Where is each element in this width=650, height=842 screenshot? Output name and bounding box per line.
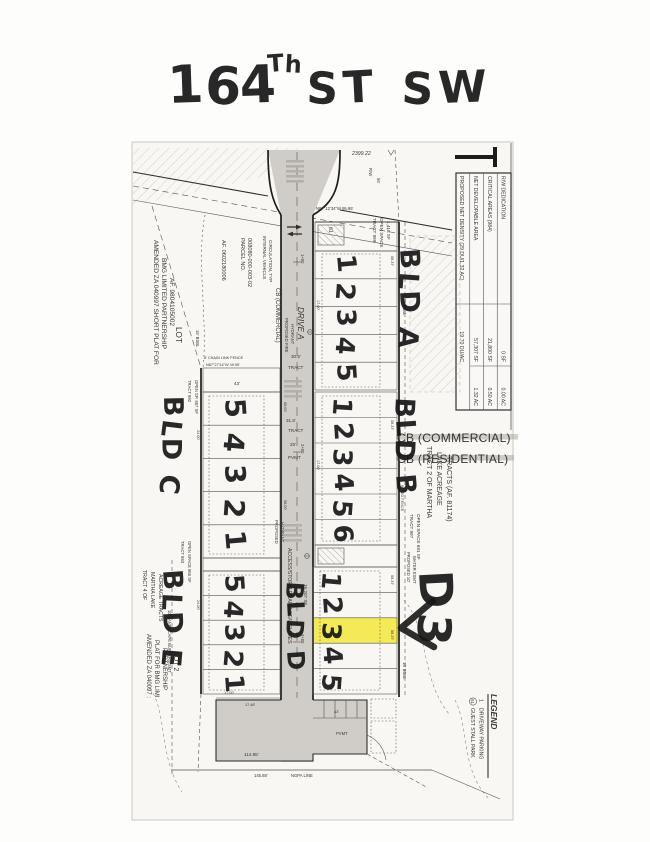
unit-dim: 58.37' [390,630,394,641]
tract-999-label: TRACT 999 [372,218,377,243]
fire-hydrant-label: HYDRANT [290,324,295,345]
unit-e-number: 2 [216,648,247,669]
parcel-number: PARCEL NO. [239,238,245,272]
legend-item-label: DRIVEWAY PARKING [478,708,484,759]
unit-dim: 58.37' [390,575,394,586]
dim-25: 25' [290,442,296,447]
dim-2399: 2399.22 [351,151,371,157]
internal-circulation-note: INTERNAL VEHICLE [262,236,267,279]
table-row-label: NET DEVELOPABLE AREA [472,176,478,241]
tract-992-label: OPEN SP. 957 SF [194,380,199,414]
tract-2-label: TRACTS (AF. 81174) [445,456,452,522]
unit-c-number: 2 [217,498,251,520]
tract-997-label: OPEN SPACE 691 SF [416,514,421,560]
internal-circulation-note: CIRCULATION, TYP [268,240,273,282]
proposed-hydrant-label: HYDRANT [280,522,285,543]
court-dim: 17.48' [245,703,256,707]
unit-dim: 58.37' [390,256,394,267]
table-row-acres: 0.00 AC [500,388,506,407]
table-row-area: 57,307 SF [472,338,478,362]
unit-d-number: 3 [315,622,346,642]
parcel-number: 008080-000-003-02 [246,238,252,287]
dim-30-5: 30.5' [291,354,301,359]
unit-dim: 58.00' [283,402,287,413]
dim-145-88: 145.88' [254,773,268,778]
unit-a-number: 3 [330,308,361,328]
dim-56: 56' [376,178,381,184]
tract-999-label: OPEN SPACE [379,218,384,248]
scanned-plat-document: 164 Th ST SW 2399.22 R/W 56' 29.3' EX PV… [0,0,650,842]
unit-c-number: 5 [218,397,252,419]
unit-d-number: 5 [315,673,346,693]
unit-b-number: 6 [327,524,358,544]
zoning-commercial-side: CB (COMMERCIAL) [274,288,280,343]
unit-e-number: 4 [217,600,248,620]
d3-callout: D3 [406,569,465,650]
unit-b-number: 4 [327,472,358,493]
unit-dim: 17.00' [316,300,320,311]
bsbl-label: 15' BSBL [195,330,200,348]
table-row-acres: 1.32 AC [472,388,478,407]
unit-dim: 24.00' [196,600,200,611]
unit-c-number: 1 [218,529,253,551]
tract-4-label: MARTHA LAKE [149,572,155,609]
pvmt-label: PVMT [336,731,348,736]
unit-e-number: 3 [218,623,249,643]
bld-e-label: BLD E [154,568,188,670]
unit-e-number: 1 [218,673,249,693]
summary-table: R/W DEDICATION CRITICAL AREAS (984) NET … [456,173,511,410]
tract-word: TRACT [288,428,304,433]
court-dim: 43' [334,710,339,714]
bsbl-label: 15' BSBL [402,662,407,680]
tract-2-label: TRACT 2 OF MARTHA [425,446,432,518]
title-street-suffix: ST SW [306,61,494,116]
title-street-number: 164 [166,55,277,118]
station-1: 1+00 [300,254,305,264]
tract-2-label: LAKE ACREAGE [435,452,442,506]
ngpa-label: NGPA LINE [291,773,313,778]
table-row-label: R/W DEDICATION [500,176,506,219]
dim-114-85: 114.85' [244,752,259,757]
fire-hydrant-label: PROPOSED FIRE [284,318,289,353]
bld-d-label: BLD D [280,581,311,674]
plat-map-svg: 164 Th ST SW 2399.22 R/W 56' 29.3' EX PV… [0,0,650,842]
unit-b-number: 3 [326,448,357,468]
tract-997-label: TRACT 997 [409,514,414,539]
lot-label: LOT [174,327,183,343]
dim-31-5: 31.5' [286,418,296,423]
tract-4-label: TRACT 4 OF [141,570,147,600]
amended-plat-note: AF. 9804105002 [168,278,175,326]
unit-a-number: 2 [329,282,360,302]
unit-c-number: 4 [216,431,251,453]
bearing-label-c: N87°27'14"W 49.95' [206,363,240,367]
amended-plat-note: BMG LIMITED PARTNERSHIP [160,258,167,350]
unit-c-number: 3 [218,464,252,485]
guest-stall-997 [318,548,344,564]
bld-c-label: BLD C [152,394,189,497]
tract-word: TRACT [288,365,304,370]
legend-symbol: 61 [470,699,475,704]
unit-dim: 17.00' [316,460,320,471]
tract-993-label: TRACT 993 [180,541,185,564]
legend-item-label: GUEST STALL PARK [469,708,475,758]
pvmt-label: PVMT [288,455,301,460]
drive-a-label: DRIVE A [296,307,305,340]
proposed-hydrant-label: PROPOSED [274,520,279,544]
bearing-label: N87°12'34"W 95.95' [316,206,354,211]
unit-a-number: 5 [330,362,361,382]
unit-dim: 58.00' [283,500,287,511]
station-2: 2+00 [300,444,305,454]
tract-999-label: 1,418 SF [386,221,391,240]
bld-a-label: BLD A [391,247,425,351]
unit-d-number: 4 [316,645,347,666]
tract-993-label: OPEN SPACE 865 SF [187,541,192,583]
unit-e-number: 5 [218,573,249,593]
bld-b-label: BLD B [388,397,422,498]
table-row-area: 21,800 SF [486,338,492,362]
table-row-label: CRITICAL AREAS (984) [486,176,492,232]
amended-plat-note: AMENDED ZA 040997 SHORT PLAT FOR [152,240,159,365]
legend-title: LEGEND [489,694,499,729]
dim-43: 43' [234,381,240,386]
af-number: AF. 0602180006 [220,240,226,281]
legend-symbol: 1 [478,699,484,702]
amended-plat-note-2: AMENDED ZA 040097 : [145,634,151,698]
rw-label: R/W [368,168,373,176]
unit-b-number: 5 [326,499,357,519]
unit-d-number: 2 [316,595,347,615]
unit-d-number: 1 [314,570,345,591]
table-row-acres: 0.50 AC [486,388,492,407]
unit-dim: 24.00' [196,430,200,441]
unit-a-number: 1 [330,253,361,274]
unit-a-number: 4 [328,335,359,356]
stall-61-number: 61 [327,227,333,233]
unit-b-number: 1 [326,397,357,417]
unit-b-number: 2 [327,421,358,441]
table-row-area: 0 SF [500,351,506,362]
chain-fence-label: 8' CHAIN LINK FENCE [204,356,244,360]
